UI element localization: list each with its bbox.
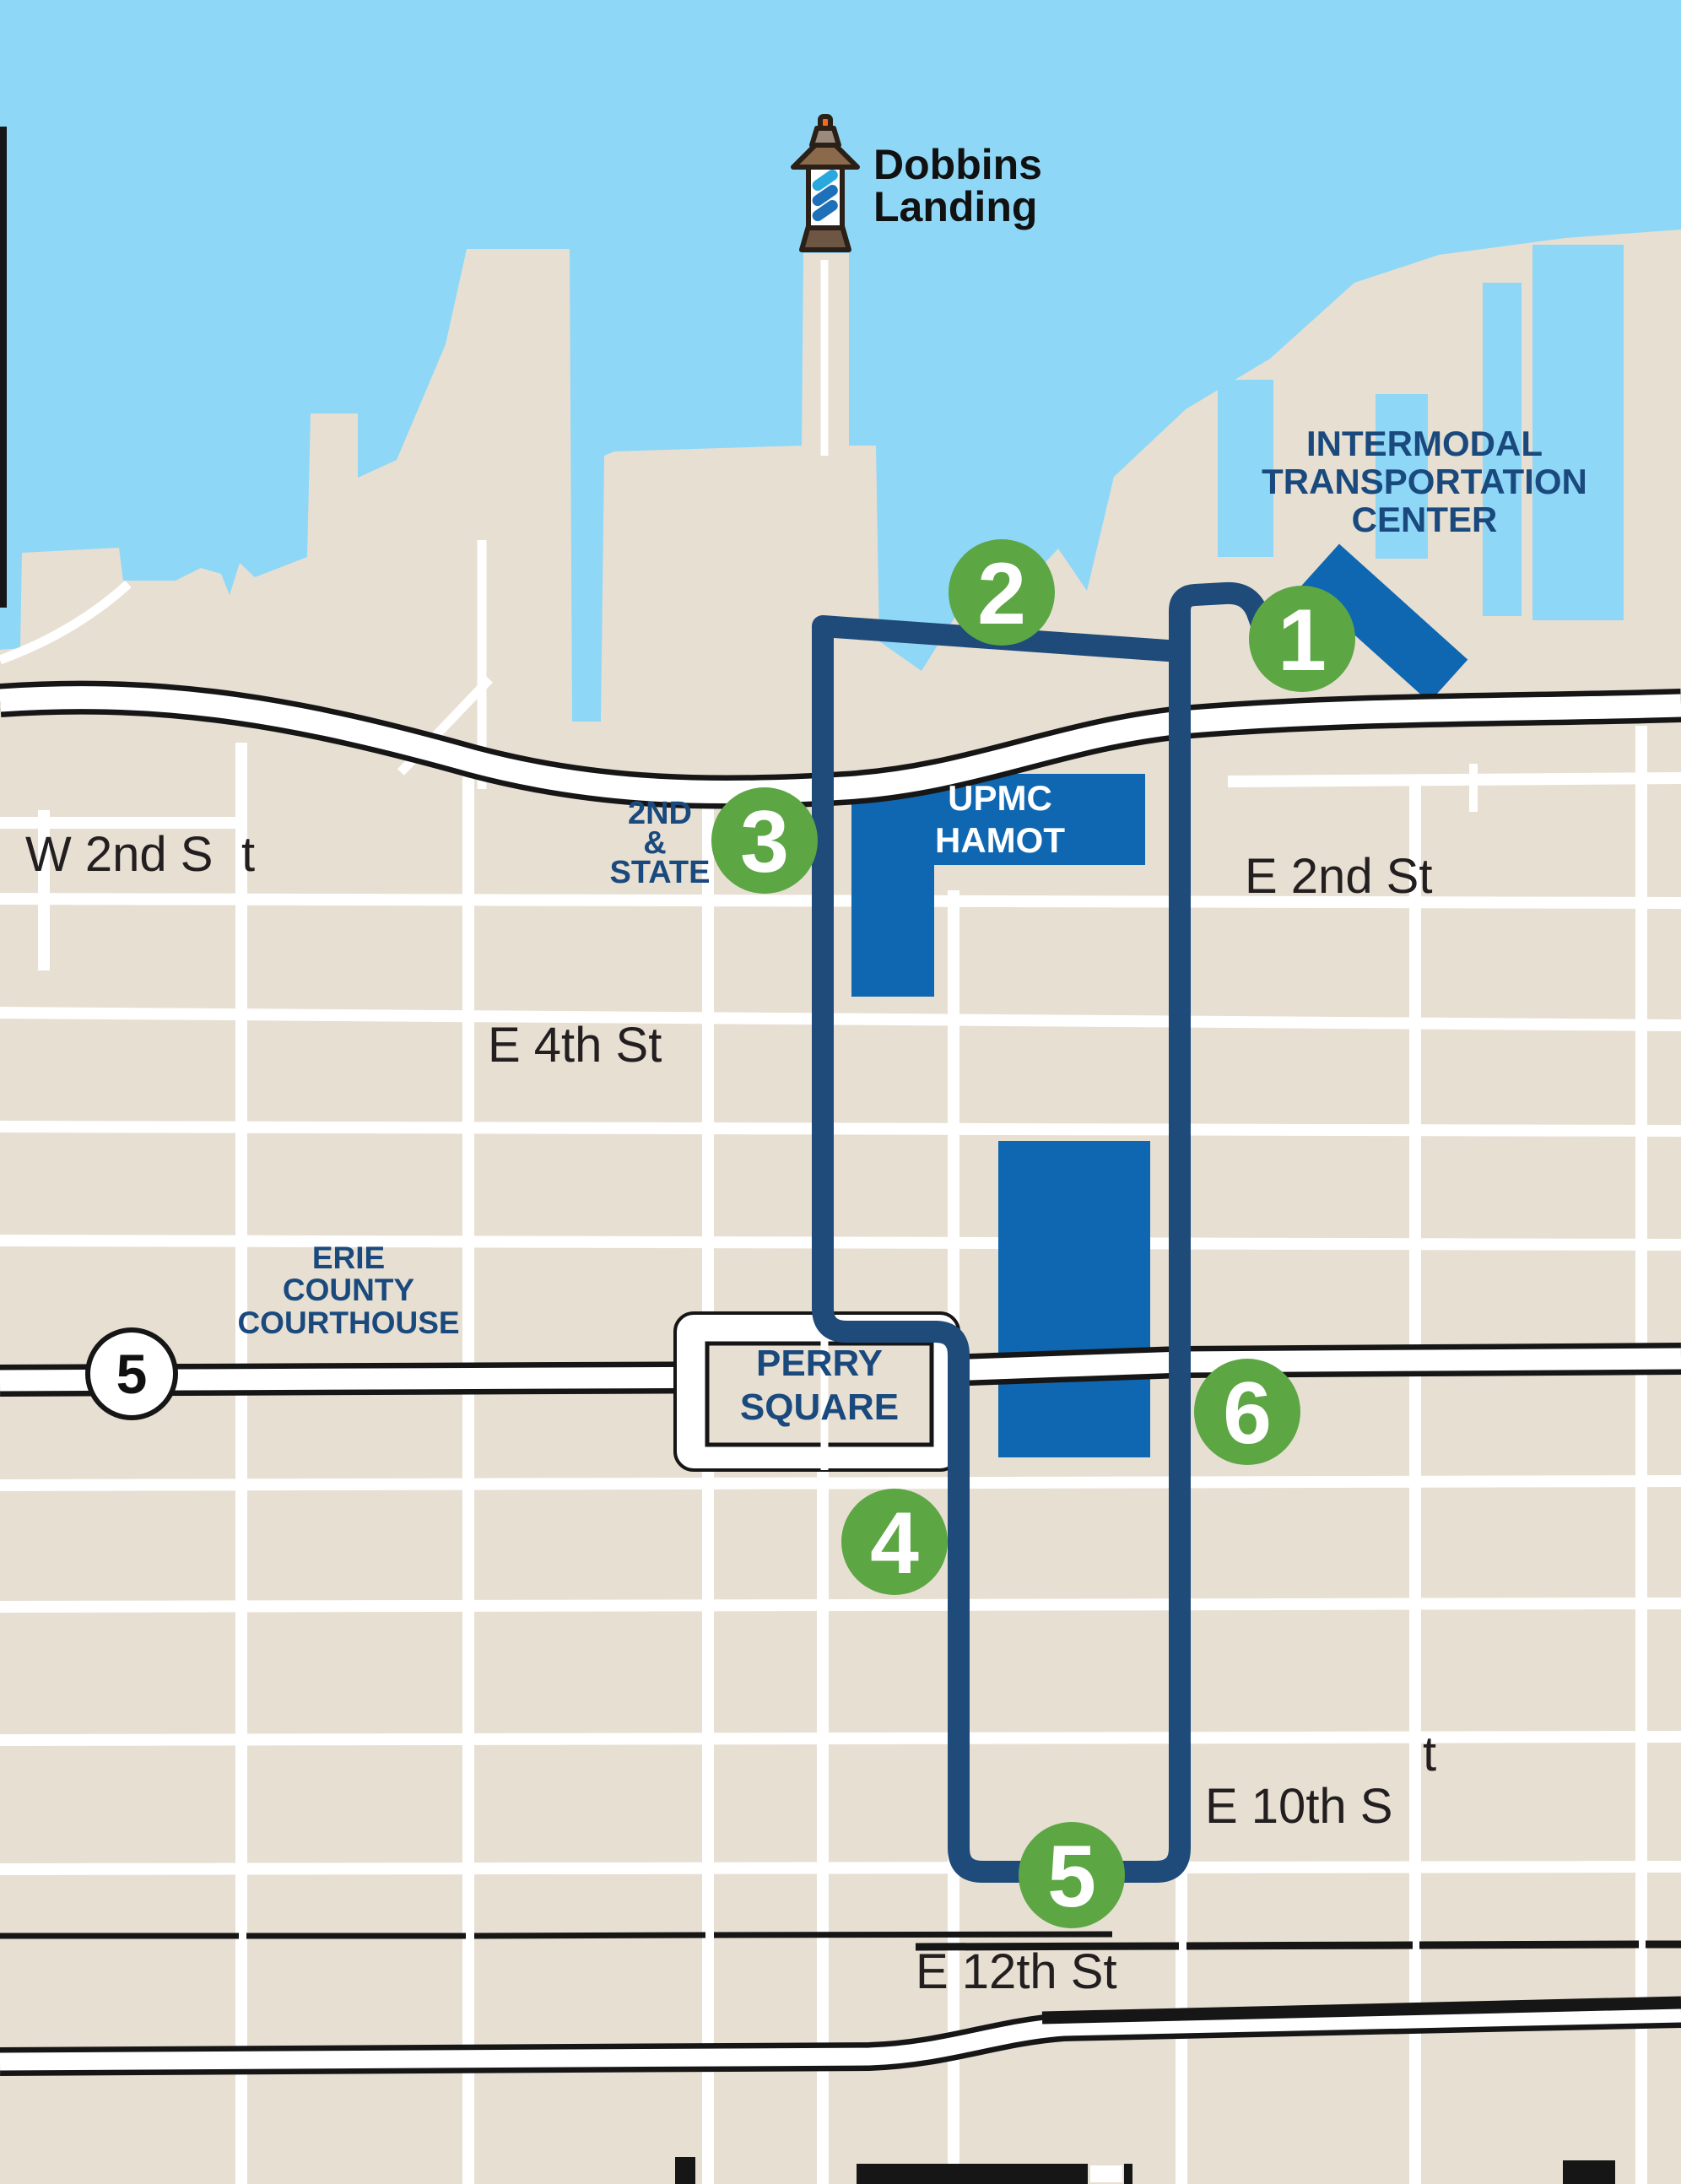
dobbins-landing-label: Dobbins Landing [873,141,1042,230]
svg-text:HAMOT: HAMOT [935,820,1065,860]
svg-text:Landing: Landing [873,183,1037,230]
e12th-street-label: E 12th St [916,1944,1117,1999]
e2nd-street-label: E 2nd St [1245,849,1432,904]
svg-text:PERRY: PERRY [756,1343,883,1384]
svg-text:ERIE: ERIE [312,1241,385,1275]
svg-text:STATE: STATE [610,855,711,890]
svg-text:4: 4 [870,1495,919,1592]
svg-text:CENTER: CENTER [1352,500,1498,539]
svg-text:COURTHOUSE: COURTHOUSE [237,1306,459,1340]
stop-marker-3: 3 [711,787,818,894]
stop-marker-1: 1 [1249,586,1355,692]
svg-text:COUNTY: COUNTY [283,1273,415,1307]
e10th-street-label-t: t [1423,1727,1436,1781]
e10th-street-label: E 10th S [1205,1779,1392,1834]
svg-text:5: 5 [116,1343,148,1405]
map-edge-line [0,127,7,608]
stop-marker-5: 5 [1019,1822,1125,1928]
svg-text:2: 2 [977,545,1026,643]
w2nd-street-label-t: t [241,827,255,882]
svg-text:TRANSPORTATION: TRANSPORTATION [1262,462,1587,501]
svg-text:Dobbins: Dobbins [873,141,1042,188]
trolley-route-map: Dobbins Landing INTERMODAL TRANSPORTATIO… [0,0,1681,2184]
svg-text:UPMC: UPMC [948,778,1052,818]
svg-text:INTERMODAL: INTERMODAL [1306,424,1543,463]
stop-marker-6: 6 [1194,1359,1300,1465]
svg-text:5: 5 [1047,1828,1096,1926]
svg-text:1: 1 [1278,592,1327,689]
stop-marker-4: 4 [841,1489,948,1595]
stop-marker-2: 2 [949,539,1055,646]
route-5-shield: 5 [88,1330,176,1418]
svg-text:SQUARE: SQUARE [740,1387,899,1428]
svg-text:3: 3 [740,793,789,891]
svg-text:6: 6 [1223,1365,1272,1462]
office-building [998,1141,1150,1457]
w2nd-street-label: W 2nd S [25,827,213,882]
e4th-street-label: E 4th St [488,1018,662,1073]
